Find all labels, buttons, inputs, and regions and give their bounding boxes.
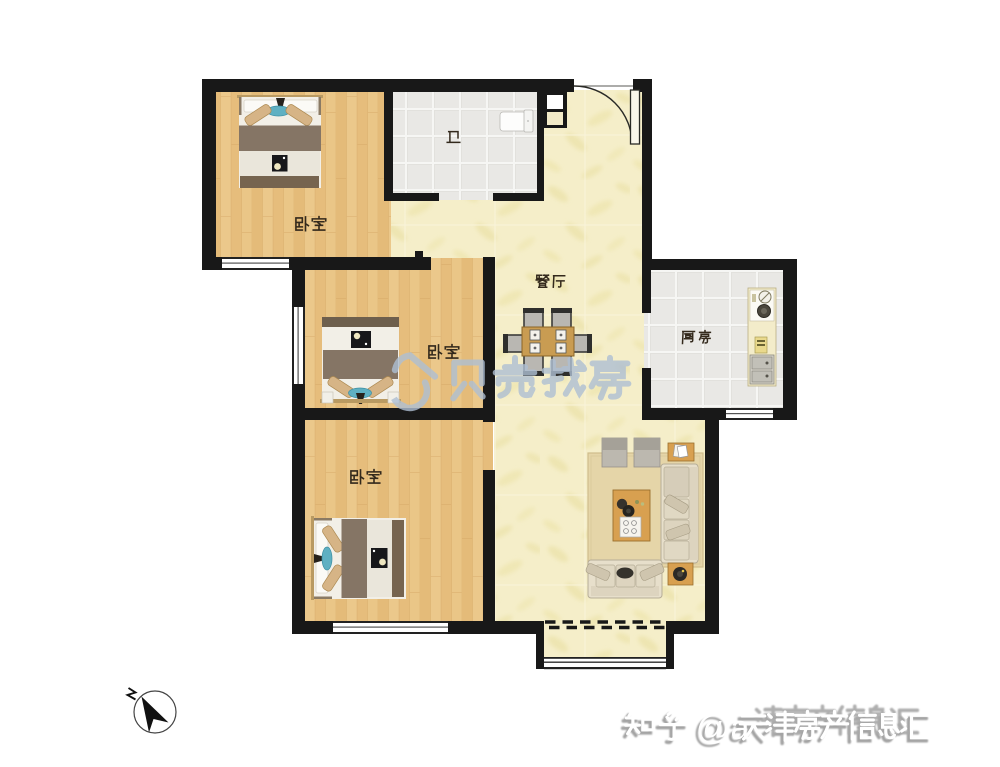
svg-text:@a: @a	[696, 709, 750, 747]
